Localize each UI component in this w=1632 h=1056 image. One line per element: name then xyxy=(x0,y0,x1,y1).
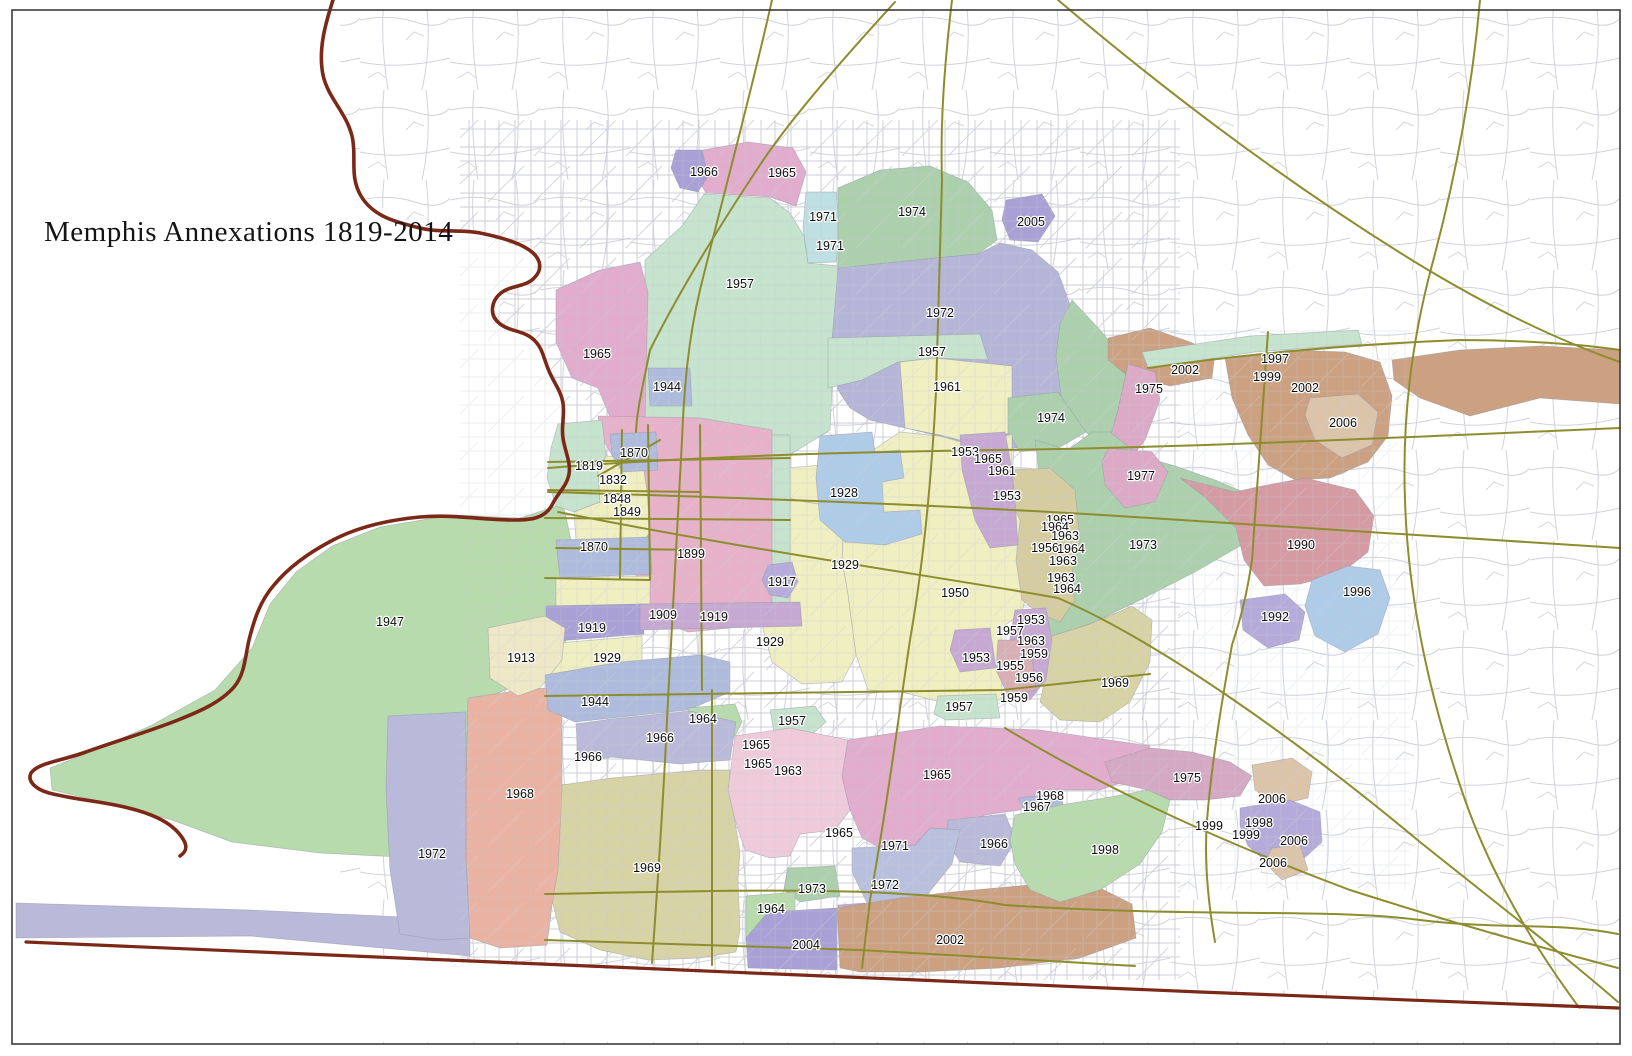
year-label: 1957 xyxy=(945,700,973,714)
year-label: 1971 xyxy=(881,839,909,853)
year-label: 1998 xyxy=(1091,843,1119,857)
year-label: 1990 xyxy=(1287,538,1315,552)
year-label: 1950 xyxy=(941,586,969,600)
year-label: 1929 xyxy=(593,651,621,665)
year-label: 1963 xyxy=(1017,634,1045,648)
year-label: 2006 xyxy=(1329,416,1357,430)
year-label: 1965 xyxy=(744,757,772,771)
year-label: 1957 xyxy=(918,345,946,359)
year-label: 1964 xyxy=(757,902,785,916)
year-label: 1944 xyxy=(653,380,681,394)
year-label: 2006 xyxy=(1258,792,1286,806)
year-label: 2002 xyxy=(1291,381,1319,395)
year-label: 1966 xyxy=(646,731,674,745)
year-label: 1944 xyxy=(581,695,609,709)
year-label: 1969 xyxy=(1101,676,1129,690)
year-label: 1967 xyxy=(1023,800,1051,814)
year-label: 1975 xyxy=(1173,771,1201,785)
year-label: 1832 xyxy=(599,473,627,487)
year-label: 1848 xyxy=(603,492,631,506)
year-label: 1965 xyxy=(583,347,611,361)
year-label: 1964 xyxy=(689,712,717,726)
year-label: 1966 xyxy=(574,750,602,764)
year-label: 1919 xyxy=(700,610,728,624)
year-label: 1957 xyxy=(726,277,754,291)
east-streets-overlay xyxy=(1170,330,1410,890)
year-label: 1999 xyxy=(1232,828,1260,842)
year-label: 1947 xyxy=(376,615,404,629)
annexation-region-1972 xyxy=(386,712,470,940)
year-label: 1972 xyxy=(871,878,899,892)
year-label: 1959 xyxy=(1020,647,1048,661)
year-label: 1956 xyxy=(1015,671,1043,685)
year-label: 1964 xyxy=(1053,582,1081,596)
year-label: 1968 xyxy=(506,787,534,801)
year-label: 1870 xyxy=(580,540,608,554)
year-label: 1965 xyxy=(923,768,951,782)
year-label: 1973 xyxy=(798,882,826,896)
year-label: 2002 xyxy=(1171,363,1199,377)
year-label: 1971 xyxy=(809,210,837,224)
year-label: 1965 xyxy=(742,738,770,752)
year-label: 1956 xyxy=(1031,541,1059,555)
year-label: 1917 xyxy=(768,575,796,589)
year-label: 1957 xyxy=(778,714,806,728)
year-label: 1977 xyxy=(1127,469,1155,483)
year-label: 1973 xyxy=(1129,538,1157,552)
year-label: 1928 xyxy=(830,486,858,500)
year-label: 1975 xyxy=(1135,382,1163,396)
year-label: 1953 xyxy=(962,651,990,665)
year-label: 1870 xyxy=(620,446,648,460)
year-label: 1972 xyxy=(926,306,954,320)
year-label: 1819 xyxy=(575,459,603,473)
year-label: 1913 xyxy=(507,651,535,665)
year-label: 2005 xyxy=(1017,215,1045,229)
year-label: 1965 xyxy=(768,166,796,180)
year-label: 1929 xyxy=(831,558,859,572)
year-label: 1909 xyxy=(649,608,677,622)
year-label: 1959 xyxy=(1000,691,1028,705)
year-label: 1999 xyxy=(1195,819,1223,833)
year-label: 1997 xyxy=(1261,352,1289,366)
year-label: 1929 xyxy=(756,635,784,649)
year-label: 1963 xyxy=(1049,554,1077,568)
year-label: 2006 xyxy=(1280,834,1308,848)
year-label: 1965 xyxy=(825,826,853,840)
year-label: 2002 xyxy=(936,933,964,947)
year-label: 1972 xyxy=(418,847,446,861)
year-label: 1974 xyxy=(898,205,926,219)
year-label: 1953 xyxy=(993,489,1021,503)
year-label: 1992 xyxy=(1261,610,1289,624)
year-label: 1969 xyxy=(633,861,661,875)
year-label: 1966 xyxy=(690,165,718,179)
year-label: 1999 xyxy=(1253,370,1281,384)
year-label: 1899 xyxy=(677,547,705,561)
year-label: 1961 xyxy=(988,464,1016,478)
year-label: 2004 xyxy=(792,938,820,952)
year-label: 1849 xyxy=(613,505,641,519)
year-label: 1961 xyxy=(933,380,961,394)
year-label: 1971 xyxy=(816,239,844,253)
map-canvas: 1966196519711974200519711957197219651957… xyxy=(0,0,1632,1056)
year-label: 1919 xyxy=(578,621,606,635)
map-title: Memphis Annexations 1819-2014 xyxy=(44,216,453,248)
year-label: 1974 xyxy=(1037,411,1065,425)
year-label: 1966 xyxy=(980,837,1008,851)
memphis-annexation-map: 1966196519711974200519711957197219651957… xyxy=(0,0,1632,1056)
year-label: 1996 xyxy=(1343,585,1371,599)
year-label: 1963 xyxy=(774,764,802,778)
year-label: 2006 xyxy=(1259,856,1287,870)
